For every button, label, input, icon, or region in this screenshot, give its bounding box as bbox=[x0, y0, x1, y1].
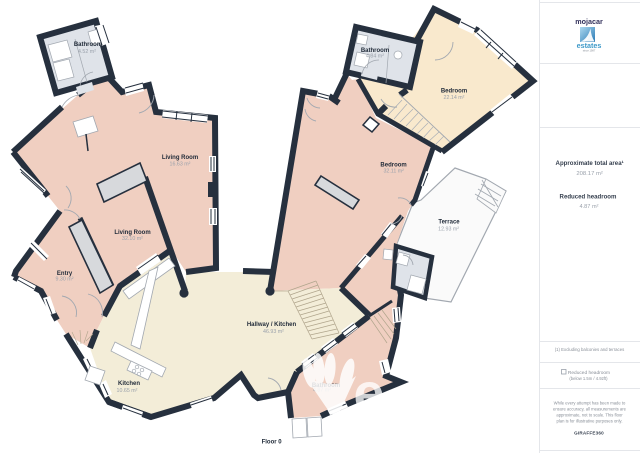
svg-text:Floor 0: Floor 0 bbox=[262, 440, 283, 446]
svg-text:approximate, not to scale. Thi: approximate, not to scale. This floor bbox=[556, 413, 623, 418]
svg-text:22.14 m²: 22.14 m² bbox=[444, 95, 465, 101]
svg-text:plan is for illustrative purpo: plan is for illustrative purposes only. bbox=[556, 419, 622, 424]
svg-text:While every attempt has been m: While every attempt has been made to bbox=[554, 400, 626, 405]
svg-text:Bathroom: Bathroom bbox=[74, 42, 102, 48]
svg-text:(below 1.5m / 4.92ft): (below 1.5m / 4.92ft) bbox=[569, 376, 608, 381]
svg-text:12.93 m²: 12.93 m² bbox=[438, 227, 459, 233]
svg-text:32.11 m²: 32.11 m² bbox=[383, 169, 404, 175]
svg-text:since 1987: since 1987 bbox=[583, 48, 596, 52]
svg-text:mojacar: mojacar bbox=[575, 17, 603, 26]
svg-text:GIRAFFE360: GIRAFFE360 bbox=[574, 430, 604, 435]
svg-text:46.93 m²: 46.93 m² bbox=[263, 329, 284, 335]
svg-text:Hallway / Kitchen: Hallway / Kitchen bbox=[247, 322, 297, 328]
svg-text:Bedroom: Bedroom bbox=[441, 89, 467, 95]
svg-text:Terrace: Terrace bbox=[438, 220, 460, 226]
svg-text:Approximate total area¹: Approximate total area¹ bbox=[556, 160, 624, 167]
svg-text:208.17 m²: 208.17 m² bbox=[576, 171, 603, 177]
svg-text:(1) Excluding balconies and te: (1) Excluding balconies and terraces bbox=[555, 347, 625, 352]
svg-text:Kitchen: Kitchen bbox=[118, 381, 140, 387]
svg-text:ensure accuracy, all measureme: ensure accuracy, all measurements are bbox=[553, 406, 627, 411]
svg-text:4.87 m²: 4.87 m² bbox=[580, 204, 599, 210]
svg-text:Living Room: Living Room bbox=[162, 155, 198, 161]
svg-text:9.30 m²: 9.30 m² bbox=[56, 277, 74, 283]
svg-text:4.52 m²: 4.52 m² bbox=[78, 49, 96, 55]
svg-text:a: a bbox=[397, 369, 429, 432]
svg-text:Reduced headroom: Reduced headroom bbox=[560, 194, 617, 201]
svg-text:10.65 m²: 10.65 m² bbox=[117, 388, 138, 394]
svg-text:32.10 m²: 32.10 m² bbox=[122, 236, 143, 242]
svg-text:4.84 m²: 4.84 m² bbox=[366, 54, 384, 60]
svg-text:e: e bbox=[353, 361, 384, 424]
svg-text:16.63 m²: 16.63 m² bbox=[170, 162, 191, 168]
